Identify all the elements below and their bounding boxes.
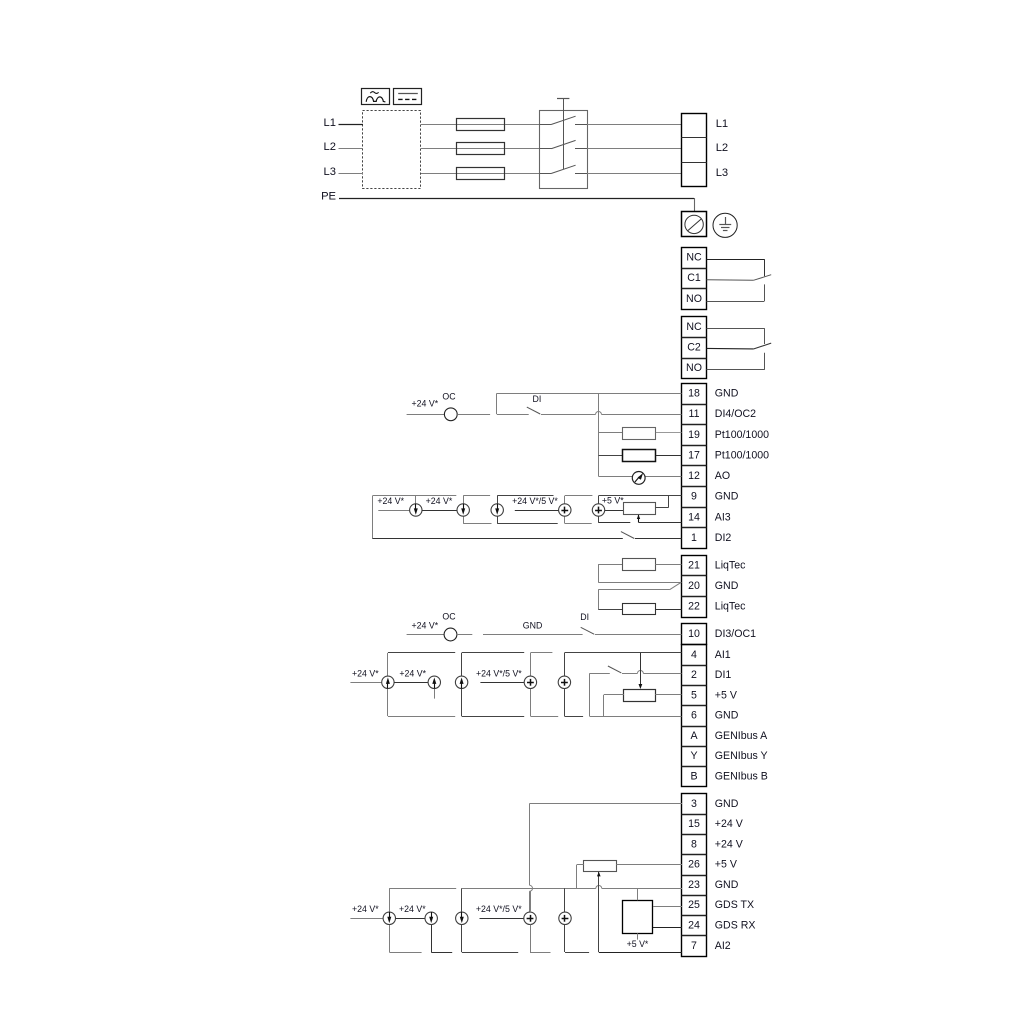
svg-text:Pt100/1000: Pt100/1000	[715, 429, 769, 441]
svg-text:+24 V*: +24 V*	[377, 496, 404, 506]
svg-text:OC: OC	[442, 611, 456, 621]
svg-text:GENIbus A: GENIbus A	[715, 730, 768, 742]
svg-text:+24 V*: +24 V*	[426, 496, 453, 506]
svg-text:22: 22	[688, 601, 700, 613]
svg-text:2: 2	[691, 669, 697, 681]
svg-text:15: 15	[688, 818, 700, 830]
svg-text:B: B	[690, 771, 697, 783]
svg-text:19: 19	[688, 429, 700, 441]
svg-text:Pt100/1000: Pt100/1000	[715, 449, 769, 461]
svg-text:C2: C2	[687, 342, 701, 354]
svg-text:L2: L2	[324, 141, 336, 153]
svg-text:+24 V*: +24 V*	[412, 399, 439, 409]
svg-text:+24 V: +24 V	[715, 818, 744, 830]
svg-text:GENIbus Y: GENIbus Y	[715, 750, 768, 762]
svg-text:NO: NO	[686, 362, 702, 374]
svg-text:11: 11	[689, 408, 700, 420]
svg-text:17: 17	[688, 449, 700, 461]
svg-text:26: 26	[688, 859, 700, 871]
svg-text:+24 V*/5 V*: +24 V*/5 V*	[512, 496, 558, 506]
svg-text:+5 V: +5 V	[715, 859, 738, 871]
svg-text:+5 V*: +5 V*	[602, 495, 624, 505]
svg-text:C1: C1	[687, 272, 701, 284]
svg-text:18: 18	[688, 388, 700, 400]
svg-text:DI3/OC1: DI3/OC1	[715, 628, 756, 640]
svg-text:14: 14	[688, 511, 700, 523]
svg-text:1: 1	[691, 532, 697, 544]
svg-text:DI1: DI1	[715, 669, 732, 681]
svg-text:12: 12	[688, 470, 700, 482]
svg-text:+24 V*/5 V*: +24 V*/5 V*	[476, 669, 522, 679]
svg-text:23: 23	[688, 879, 700, 891]
svg-text:Y: Y	[690, 750, 697, 762]
svg-text:25: 25	[688, 899, 700, 911]
svg-text:L2: L2	[716, 142, 728, 154]
svg-text:10: 10	[688, 628, 700, 640]
svg-text:AO: AO	[715, 470, 730, 482]
svg-text:DI: DI	[580, 612, 589, 622]
svg-text:GND: GND	[715, 710, 739, 722]
svg-text:AI3: AI3	[715, 511, 731, 523]
svg-text:L1: L1	[324, 117, 336, 129]
svg-text:LiqTec: LiqTec	[715, 601, 746, 613]
svg-text:+24 V*: +24 V*	[412, 620, 439, 630]
svg-text:+24 V*/5 V*: +24 V*/5 V*	[476, 904, 522, 914]
svg-text:NC: NC	[686, 321, 702, 333]
svg-text:GND: GND	[715, 798, 739, 810]
svg-text:DI2: DI2	[715, 532, 732, 544]
svg-text:DI: DI	[533, 394, 542, 404]
svg-text:NO: NO	[686, 293, 702, 305]
svg-text:+5 V*: +5 V*	[627, 939, 649, 949]
svg-text:20: 20	[688, 580, 700, 592]
svg-text:+24 V*: +24 V*	[399, 669, 426, 679]
svg-text:+24 V*: +24 V*	[352, 669, 379, 679]
svg-text:L3: L3	[324, 166, 336, 178]
svg-text:A: A	[690, 730, 698, 742]
svg-text:GND: GND	[715, 580, 739, 592]
svg-text:4: 4	[691, 649, 697, 661]
svg-text:OC: OC	[442, 391, 456, 401]
svg-text:8: 8	[691, 838, 697, 850]
svg-text:GDS RX: GDS RX	[715, 920, 756, 932]
svg-text:+5 V: +5 V	[715, 689, 738, 701]
svg-text:GND: GND	[715, 388, 739, 400]
svg-text:NC: NC	[686, 252, 702, 264]
svg-text:3: 3	[691, 798, 697, 810]
svg-text:GENIbus B: GENIbus B	[715, 771, 768, 783]
svg-text:L1: L1	[716, 118, 728, 130]
svg-text:GND: GND	[715, 491, 739, 503]
svg-text:21: 21	[688, 559, 700, 571]
svg-text:AI2: AI2	[715, 940, 731, 952]
svg-text:GND: GND	[715, 879, 739, 891]
svg-text:9: 9	[691, 491, 697, 503]
svg-text:+24 V*: +24 V*	[399, 904, 426, 914]
svg-text:GDS TX: GDS TX	[715, 899, 754, 911]
svg-text:24: 24	[688, 920, 700, 932]
svg-text:+24 V*: +24 V*	[352, 904, 379, 914]
svg-text:+24 V: +24 V	[715, 838, 744, 850]
svg-text:GND: GND	[523, 620, 543, 630]
svg-text:LiqTec: LiqTec	[715, 559, 746, 571]
svg-text:5: 5	[691, 689, 697, 701]
svg-text:PE: PE	[321, 191, 336, 203]
svg-text:7: 7	[691, 940, 697, 952]
svg-text:L3: L3	[716, 167, 728, 179]
svg-text:AI1: AI1	[715, 649, 731, 661]
svg-text:DI4/OC2: DI4/OC2	[715, 408, 756, 420]
svg-text:6: 6	[691, 710, 697, 722]
